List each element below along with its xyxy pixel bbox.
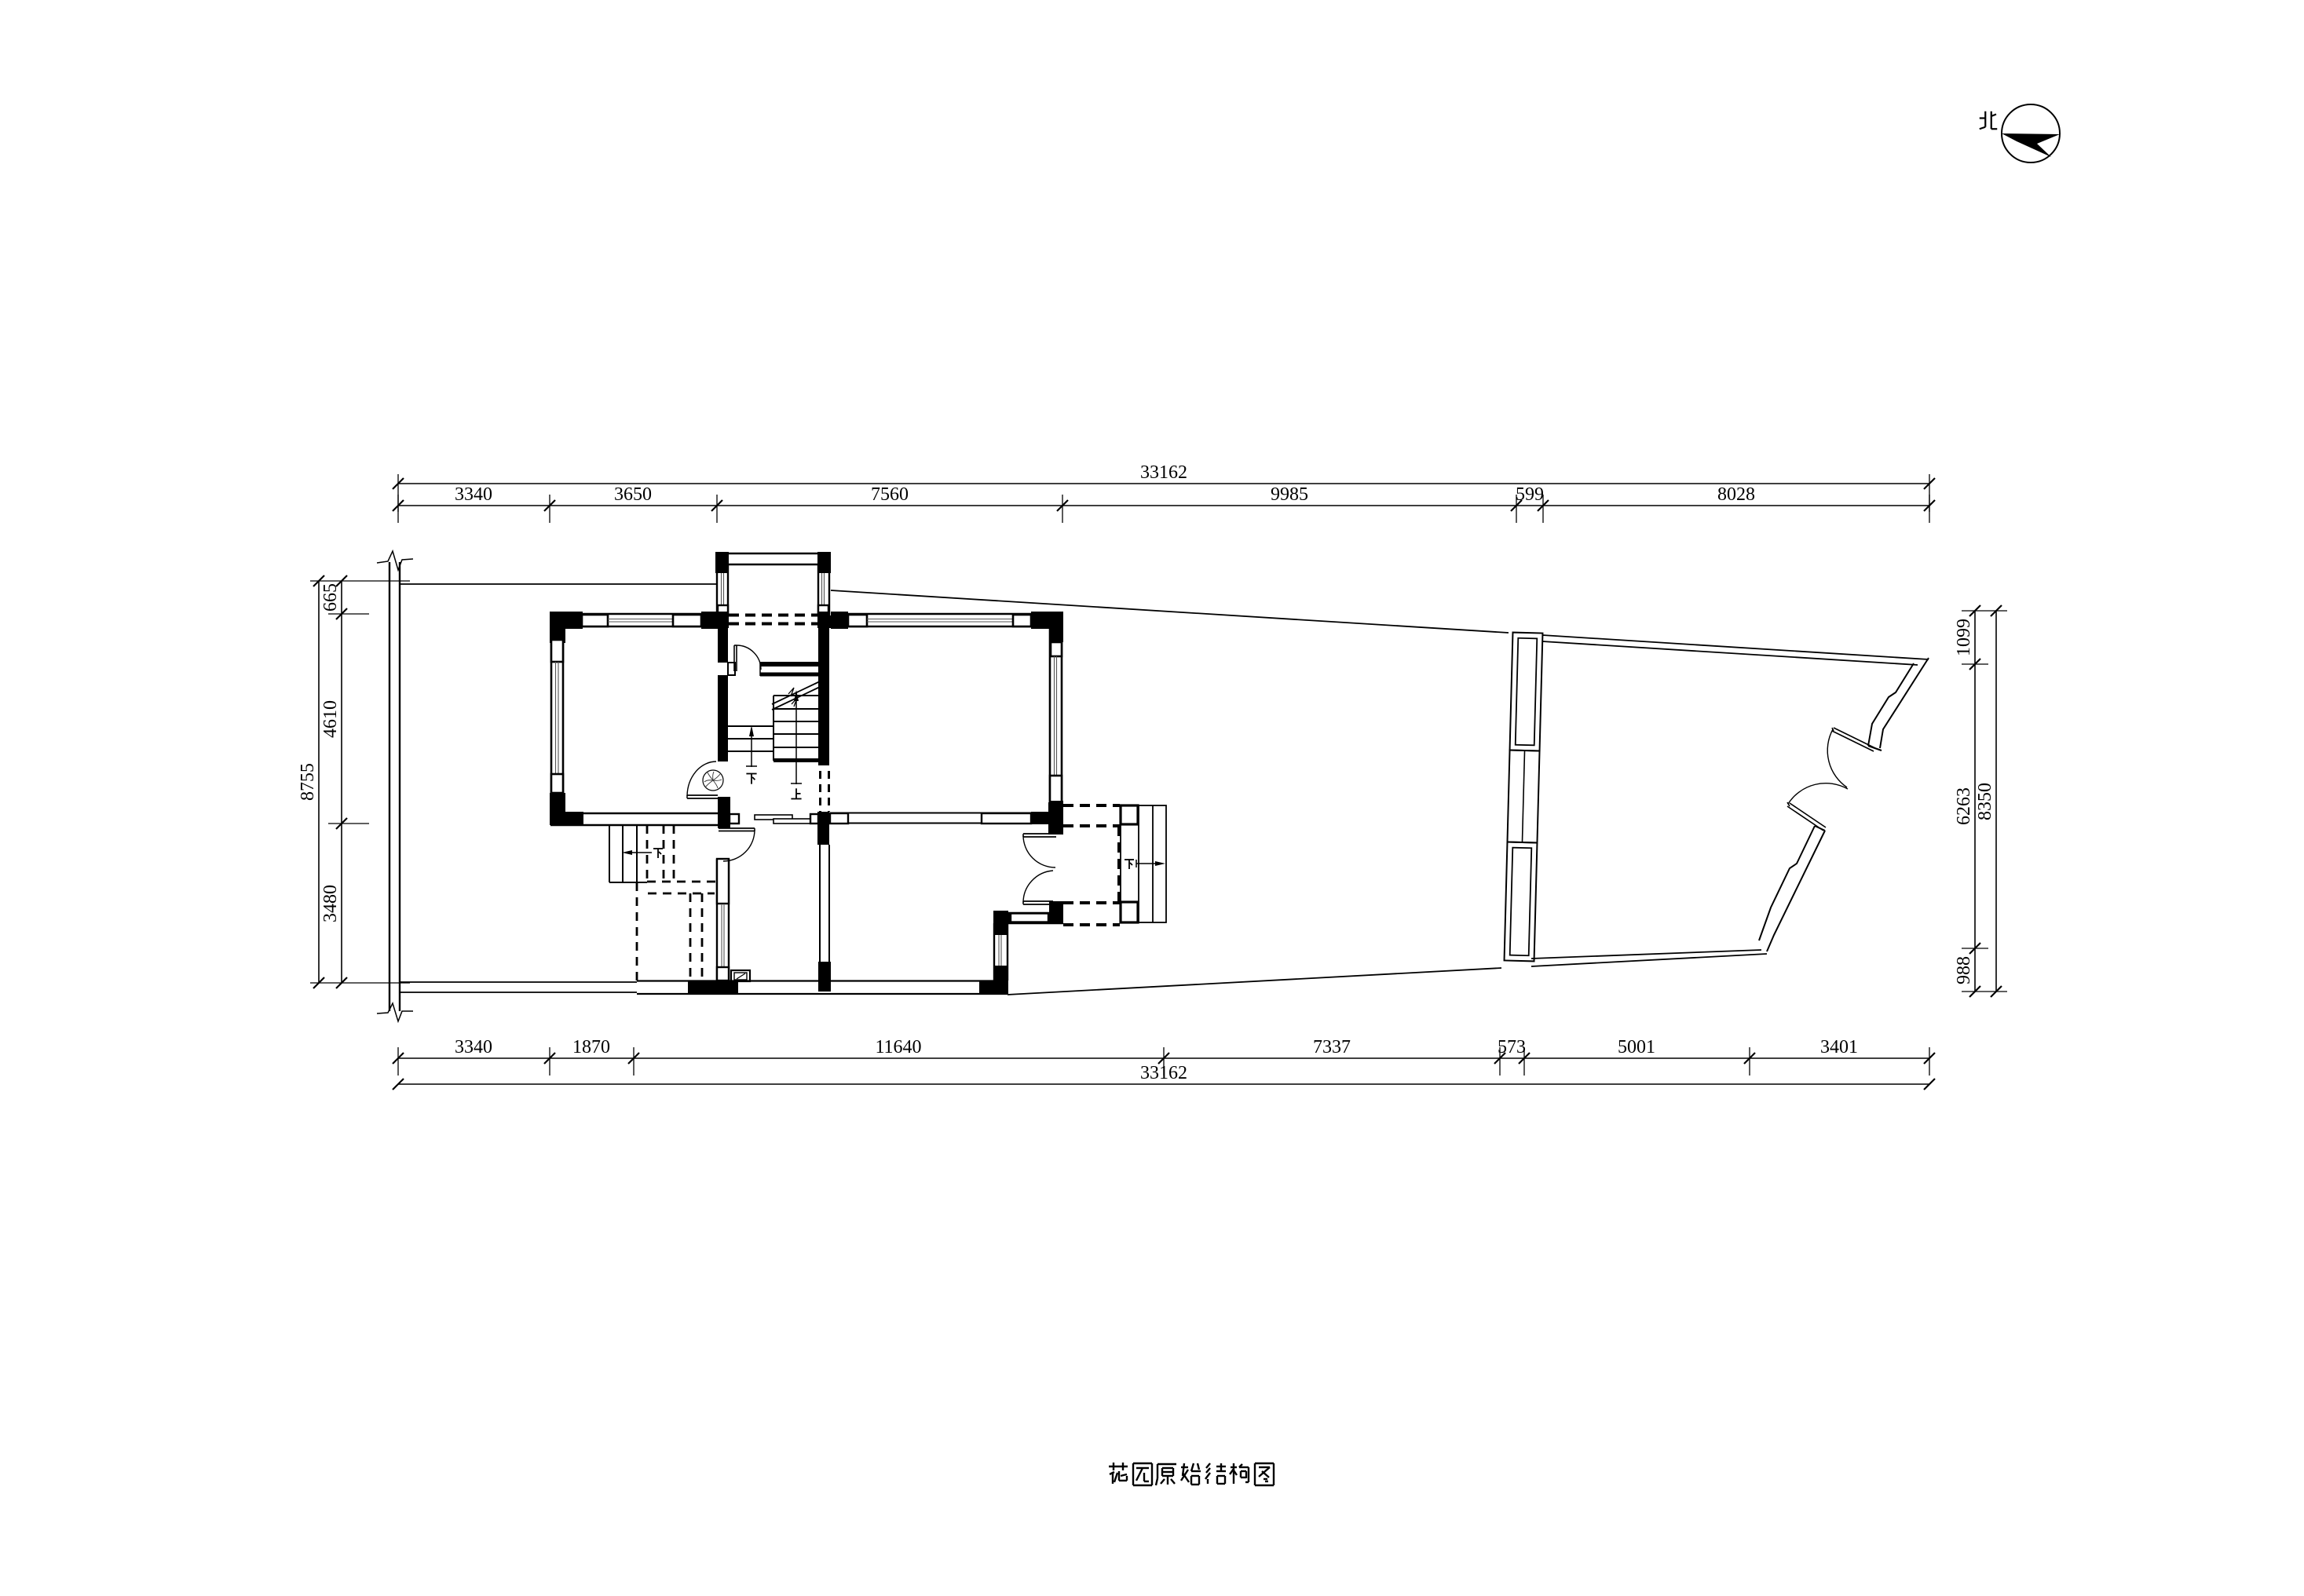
svg-text:7560: 7560 [871, 484, 909, 505]
svg-text:11640: 11640 [875, 1037, 921, 1057]
svg-text:4610: 4610 [320, 700, 341, 738]
svg-text:599: 599 [1516, 484, 1544, 505]
svg-text:3650: 3650 [614, 484, 652, 505]
svg-text:1870: 1870 [572, 1037, 610, 1057]
svg-text:3401: 3401 [1820, 1037, 1858, 1057]
svg-text:8028: 8028 [1717, 484, 1755, 505]
svg-text:9985: 9985 [1271, 484, 1308, 505]
svg-text:3480: 3480 [320, 885, 341, 922]
svg-text:3340: 3340 [455, 1037, 492, 1057]
svg-text:8350: 8350 [1975, 783, 1995, 820]
svg-text:8755: 8755 [298, 763, 318, 801]
svg-text:33162: 33162 [1140, 462, 1187, 483]
svg-text:988: 988 [1954, 956, 1974, 984]
svg-text:33162: 33162 [1140, 1063, 1187, 1083]
svg-text:3340: 3340 [455, 484, 492, 505]
svg-text:5001: 5001 [1618, 1037, 1655, 1057]
svg-text:7337: 7337 [1313, 1037, 1351, 1057]
svg-text:665: 665 [320, 583, 341, 612]
svg-text:573: 573 [1498, 1037, 1526, 1057]
svg-text:1099: 1099 [1954, 619, 1974, 656]
svg-text:6263: 6263 [1954, 787, 1974, 825]
